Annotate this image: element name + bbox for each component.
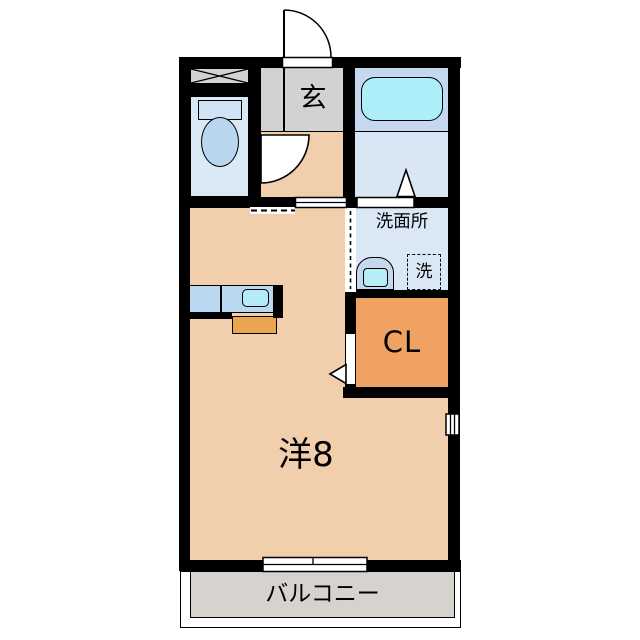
counter-end-panel	[273, 285, 283, 318]
balcony-label: バルコニー	[265, 583, 380, 606]
entrance-label-wrap: 玄	[283, 70, 343, 126]
wall-washroom-south	[345, 290, 460, 298]
wall-bath-west	[343, 68, 355, 197]
wall-west	[179, 57, 190, 571]
storage-x-box	[190, 68, 249, 84]
counter-front-edge	[188, 313, 232, 319]
laundry-label: 洗	[416, 264, 433, 281]
wall-bath-south	[343, 197, 460, 208]
wall-toilet-north	[190, 84, 249, 96]
washbasin-bowl-icon	[363, 268, 388, 287]
floor-plan: バルコニー 玄 洗面所 洗 CL 洋8	[0, 0, 640, 640]
sink-icon	[242, 289, 269, 307]
washroom-label-wrap: 洗面所	[356, 212, 448, 234]
closet-door-panel	[345, 333, 356, 385]
toilet-icon	[201, 117, 239, 167]
wall-closet-west-upper	[345, 292, 356, 333]
washroom-entry-opening	[345, 208, 356, 292]
balcony: バルコニー	[190, 571, 455, 618]
wall-east	[448, 57, 460, 571]
wall-south	[179, 560, 461, 571]
laundry-space: 洗	[407, 254, 441, 290]
bathroom-floor	[355, 132, 448, 197]
bathtub-icon	[361, 77, 443, 121]
washroom-label: 洗面所	[376, 214, 429, 232]
stove-icon	[232, 316, 277, 334]
entrance-door-arc	[284, 10, 331, 57]
entrance-step-strip	[250, 207, 295, 214]
wall-north	[179, 57, 461, 68]
closet: CL	[356, 298, 448, 387]
entrance-label: 玄	[300, 85, 327, 112]
wall-closet-south	[343, 387, 460, 398]
main-room-label-wrap: 洋8	[176, 428, 436, 482]
main-room-label: 洋8	[278, 438, 334, 472]
kitchen-counter-divider	[220, 285, 222, 313]
closet-label: CL	[383, 328, 421, 357]
wall-toilet-east	[249, 68, 261, 208]
